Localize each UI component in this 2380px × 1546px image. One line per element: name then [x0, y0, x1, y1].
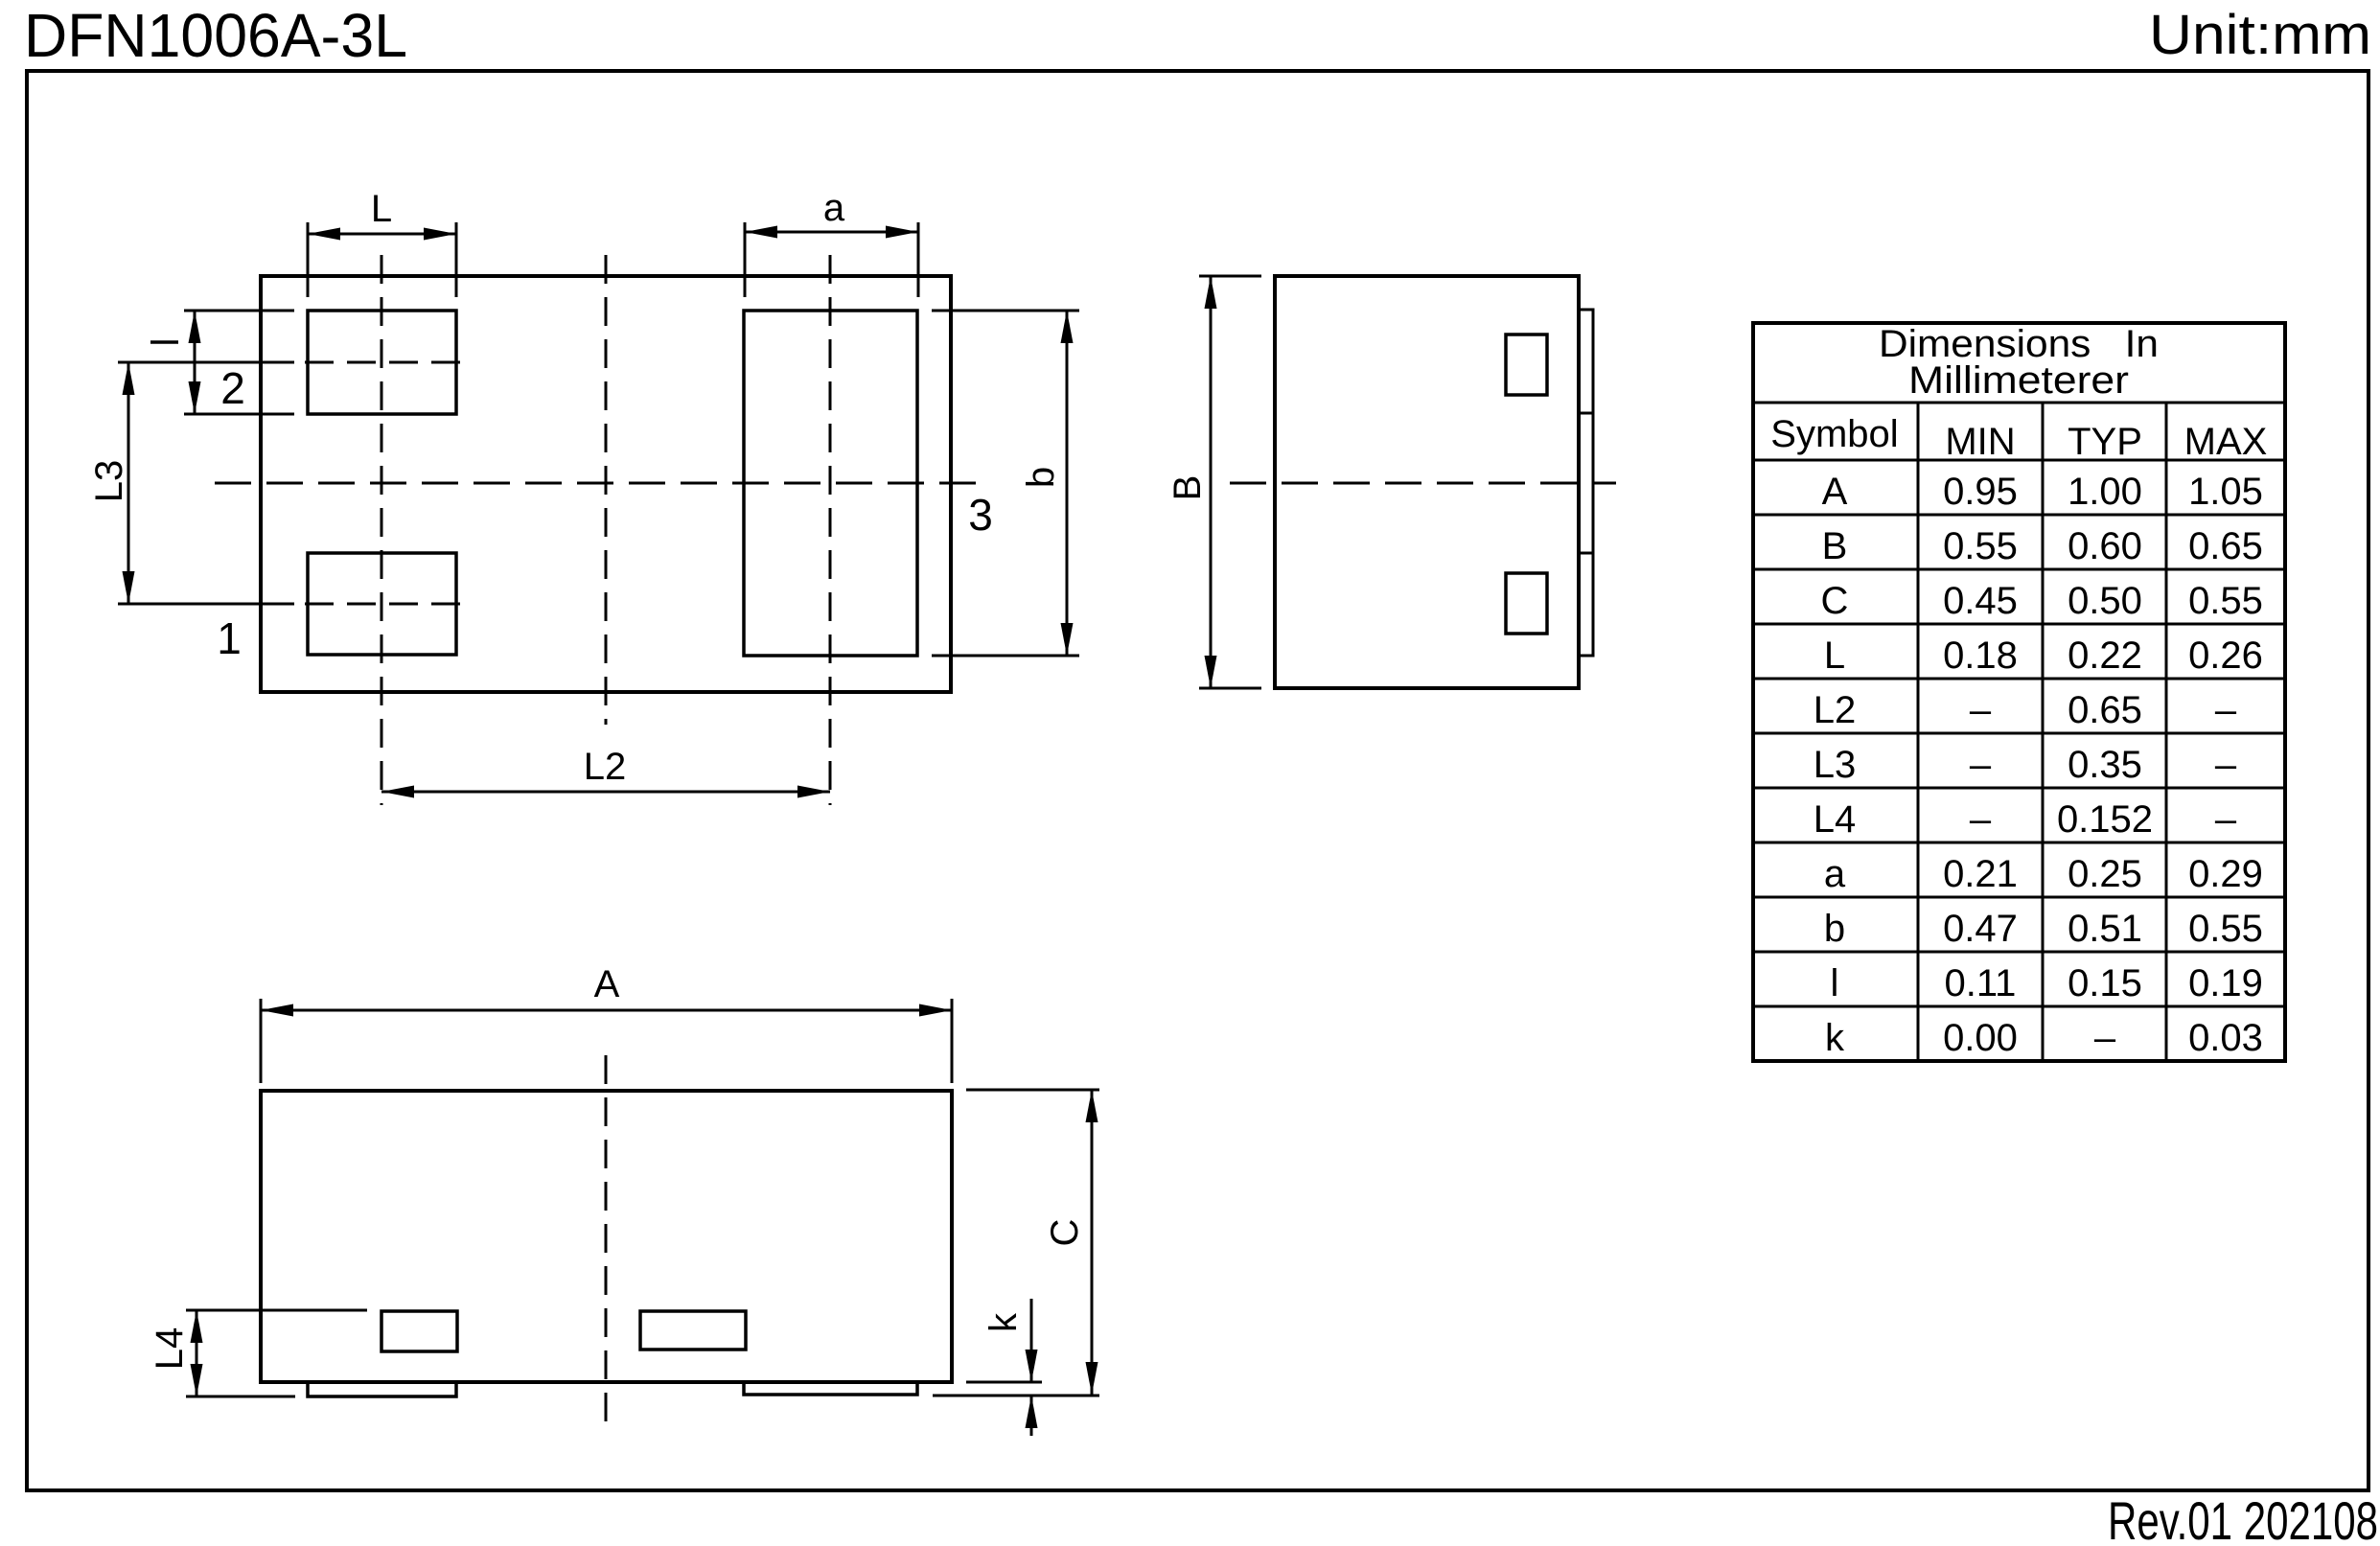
- svg-text:a: a: [823, 187, 845, 229]
- svg-text:0.60: 0.60: [2068, 525, 2142, 567]
- svg-text:A: A: [594, 963, 620, 1005]
- svg-text:–: –: [2094, 1017, 2116, 1059]
- svg-text:l: l: [145, 338, 187, 347]
- svg-text:b: b: [1824, 908, 1845, 950]
- svg-text:0.19: 0.19: [2188, 962, 2263, 1004]
- svg-text:L4: L4: [1814, 798, 1857, 841]
- svg-text:L4: L4: [149, 1327, 191, 1371]
- svg-text:Rev.01 202108: Rev.01 202108: [2108, 1490, 2378, 1546]
- svg-text:0.50: 0.50: [2068, 580, 2142, 622]
- svg-text:L3: L3: [88, 460, 130, 503]
- svg-text:TYP: TYP: [2068, 421, 2142, 463]
- svg-text:0.55: 0.55: [2188, 580, 2263, 622]
- svg-text:0.26: 0.26: [2188, 635, 2263, 677]
- svg-text:0.35: 0.35: [2068, 744, 2142, 786]
- svg-text:0.47: 0.47: [1943, 908, 2018, 950]
- svg-text:l: l: [1831, 962, 1839, 1004]
- svg-text:–: –: [2215, 798, 2237, 841]
- svg-text:0.15: 0.15: [2068, 962, 2142, 1004]
- svg-text:1.05: 1.05: [2188, 471, 2263, 513]
- svg-text:0.95: 0.95: [1943, 471, 2018, 513]
- svg-text:0.55: 0.55: [1943, 525, 2018, 567]
- svg-text:Millimeterer: Millimeterer: [1908, 359, 2129, 402]
- svg-text:0.65: 0.65: [2068, 689, 2142, 731]
- svg-text:1.00: 1.00: [2068, 471, 2142, 513]
- svg-text:L2: L2: [584, 746, 627, 788]
- svg-text:k: k: [1825, 1017, 1845, 1059]
- svg-text:–: –: [2215, 689, 2237, 731]
- svg-text:0.152: 0.152: [2057, 798, 2153, 841]
- svg-text:0.29: 0.29: [2188, 853, 2263, 895]
- svg-text:0.55: 0.55: [2188, 908, 2263, 950]
- svg-text:–: –: [1970, 744, 1992, 786]
- svg-text:0.22: 0.22: [2068, 635, 2142, 677]
- svg-text:3: 3: [968, 490, 993, 540]
- svg-text:B: B: [1822, 525, 1848, 567]
- svg-text:L: L: [371, 188, 392, 230]
- svg-text:0.25: 0.25: [2068, 853, 2142, 895]
- svg-text:MIN: MIN: [1945, 421, 2015, 463]
- svg-text:0.03: 0.03: [2188, 1017, 2263, 1059]
- svg-text:0.11: 0.11: [1945, 962, 2017, 1004]
- svg-text:a: a: [1824, 853, 1846, 895]
- svg-text:–: –: [2215, 744, 2237, 786]
- svg-text:0.00: 0.00: [1943, 1017, 2018, 1059]
- svg-text:L3: L3: [1814, 744, 1857, 786]
- svg-text:–: –: [1970, 689, 1992, 731]
- svg-text:k: k: [982, 1312, 1025, 1332]
- svg-text:0.18: 0.18: [1943, 635, 2018, 677]
- svg-text:Symbol: Symbol: [1770, 413, 1898, 455]
- svg-text:0.65: 0.65: [2188, 525, 2263, 567]
- svg-text:0.45: 0.45: [1943, 580, 2018, 622]
- svg-text:1: 1: [217, 613, 242, 663]
- svg-text:DFN1006A-3L: DFN1006A-3L: [24, 1, 407, 70]
- svg-text:–: –: [1970, 798, 1992, 841]
- svg-text:L: L: [1824, 635, 1845, 677]
- svg-text:2: 2: [220, 363, 245, 413]
- svg-text:L2: L2: [1814, 689, 1857, 731]
- svg-text:B: B: [1167, 475, 1209, 501]
- svg-text:MAX: MAX: [2184, 421, 2268, 463]
- svg-text:b: b: [1020, 467, 1062, 488]
- svg-text:C: C: [1821, 580, 1849, 622]
- svg-text:0.21: 0.21: [1943, 853, 2018, 895]
- svg-text:C: C: [1044, 1219, 1086, 1247]
- svg-text:A: A: [1822, 471, 1848, 513]
- svg-text:0.51: 0.51: [2068, 908, 2142, 950]
- svg-text:Unit:mm: Unit:mm: [2149, 4, 2371, 66]
